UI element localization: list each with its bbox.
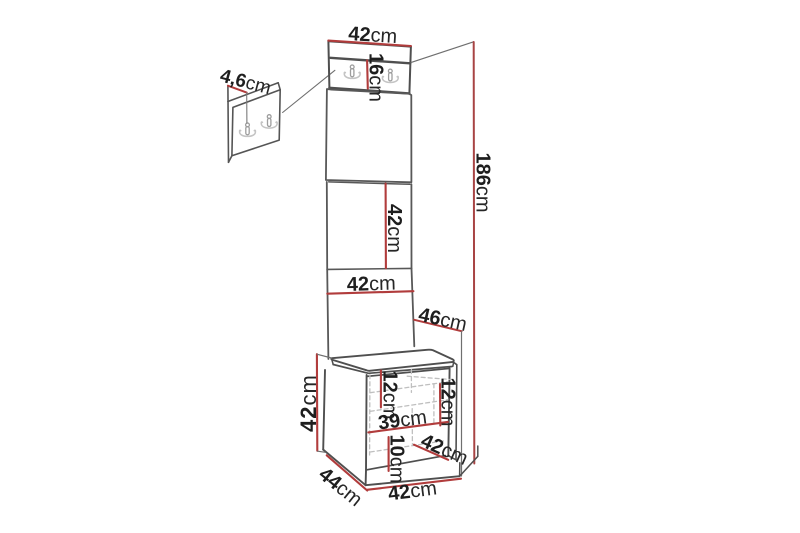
svg-text:186cm: 186cm xyxy=(472,153,494,213)
svg-text:10cm: 10cm xyxy=(386,435,408,484)
svg-text:42cm: 42cm xyxy=(383,204,405,253)
svg-text:42cm: 42cm xyxy=(346,273,396,296)
svg-text:12cm: 12cm xyxy=(437,378,459,427)
svg-text:16cm: 16cm xyxy=(365,53,387,102)
svg-text:42cm: 42cm xyxy=(348,23,398,48)
svg-text:42cm: 42cm xyxy=(296,374,321,432)
